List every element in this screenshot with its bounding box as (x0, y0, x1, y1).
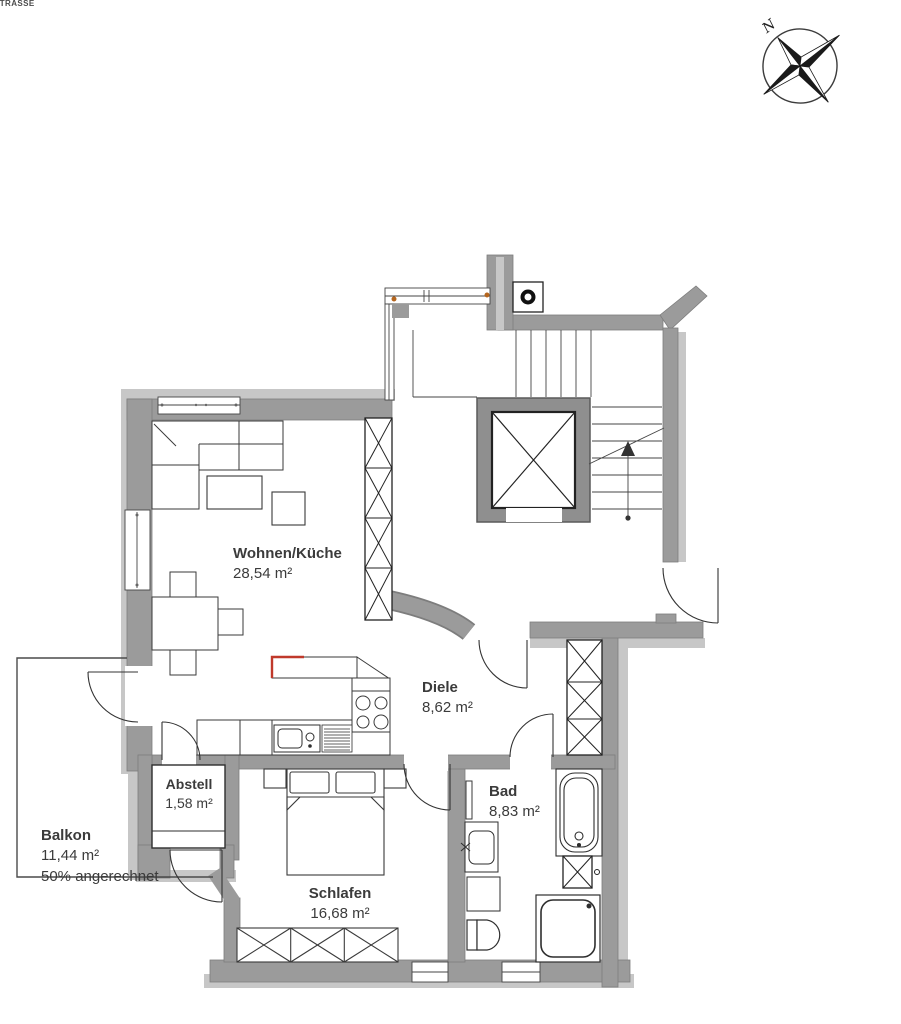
room-area: 8,83 m² (489, 802, 540, 822)
elevator (477, 398, 590, 522)
room-name: Bad (489, 782, 540, 802)
room-label-schlafen: Schlafen 16,68 m² (309, 884, 372, 925)
toilet (467, 920, 500, 950)
washbasin (461, 822, 498, 872)
shaft-hatched-wall-diele (567, 640, 602, 755)
washer-square (563, 856, 600, 888)
shower (536, 895, 600, 962)
strip-inner-band (496, 257, 504, 330)
room-label-bad: Bad 8,83 m² (489, 782, 540, 823)
room-area: 11,44 m² (41, 846, 159, 866)
side-table (272, 492, 305, 525)
bed (264, 769, 406, 875)
room-area: 28,54 m² (233, 564, 342, 584)
kitchen-drainboard (322, 725, 352, 752)
room-label-balkon: Balkon 11,44 m² 50% angerechnet (41, 826, 159, 887)
room-label-wohnen-kueche: Wohnen/Küche 28,54 m² (233, 544, 342, 585)
mirror (466, 781, 472, 819)
wardrobe (237, 928, 398, 962)
floor-plan-page: Strasse (0, 0, 901, 1024)
shaft-hatched-wall-living (365, 418, 392, 620)
bathroom-cabinet (467, 877, 500, 911)
curved-corridor-wall (389, 600, 469, 632)
room-label-diele: Diele 8,62 m² (422, 678, 473, 719)
room-name: Abstell (165, 775, 212, 794)
compass-rose: N (728, 0, 868, 131)
railing-post (392, 304, 409, 318)
room-area: 16,68 m² (309, 904, 372, 924)
kitchen-sink (274, 725, 320, 752)
column-symbol (513, 282, 543, 312)
coffee-table (207, 476, 262, 509)
entrance-door (479, 640, 527, 688)
room-note: 50% angerechnet (41, 867, 159, 887)
room-area: 8,62 m² (422, 698, 473, 718)
room-name: Wohnen/Küche (233, 544, 342, 564)
bathtub (556, 769, 602, 856)
compass-north-label: N (759, 16, 780, 37)
room-label-abstell: Abstell 1,58 m² (165, 775, 212, 813)
bathroom-door (510, 714, 553, 757)
room-area: 1,58 m² (165, 794, 212, 813)
room-name: Diele (422, 678, 473, 698)
dining-set (152, 572, 243, 675)
room-name: Balkon (41, 826, 159, 846)
room-name: Schlafen (309, 884, 372, 904)
